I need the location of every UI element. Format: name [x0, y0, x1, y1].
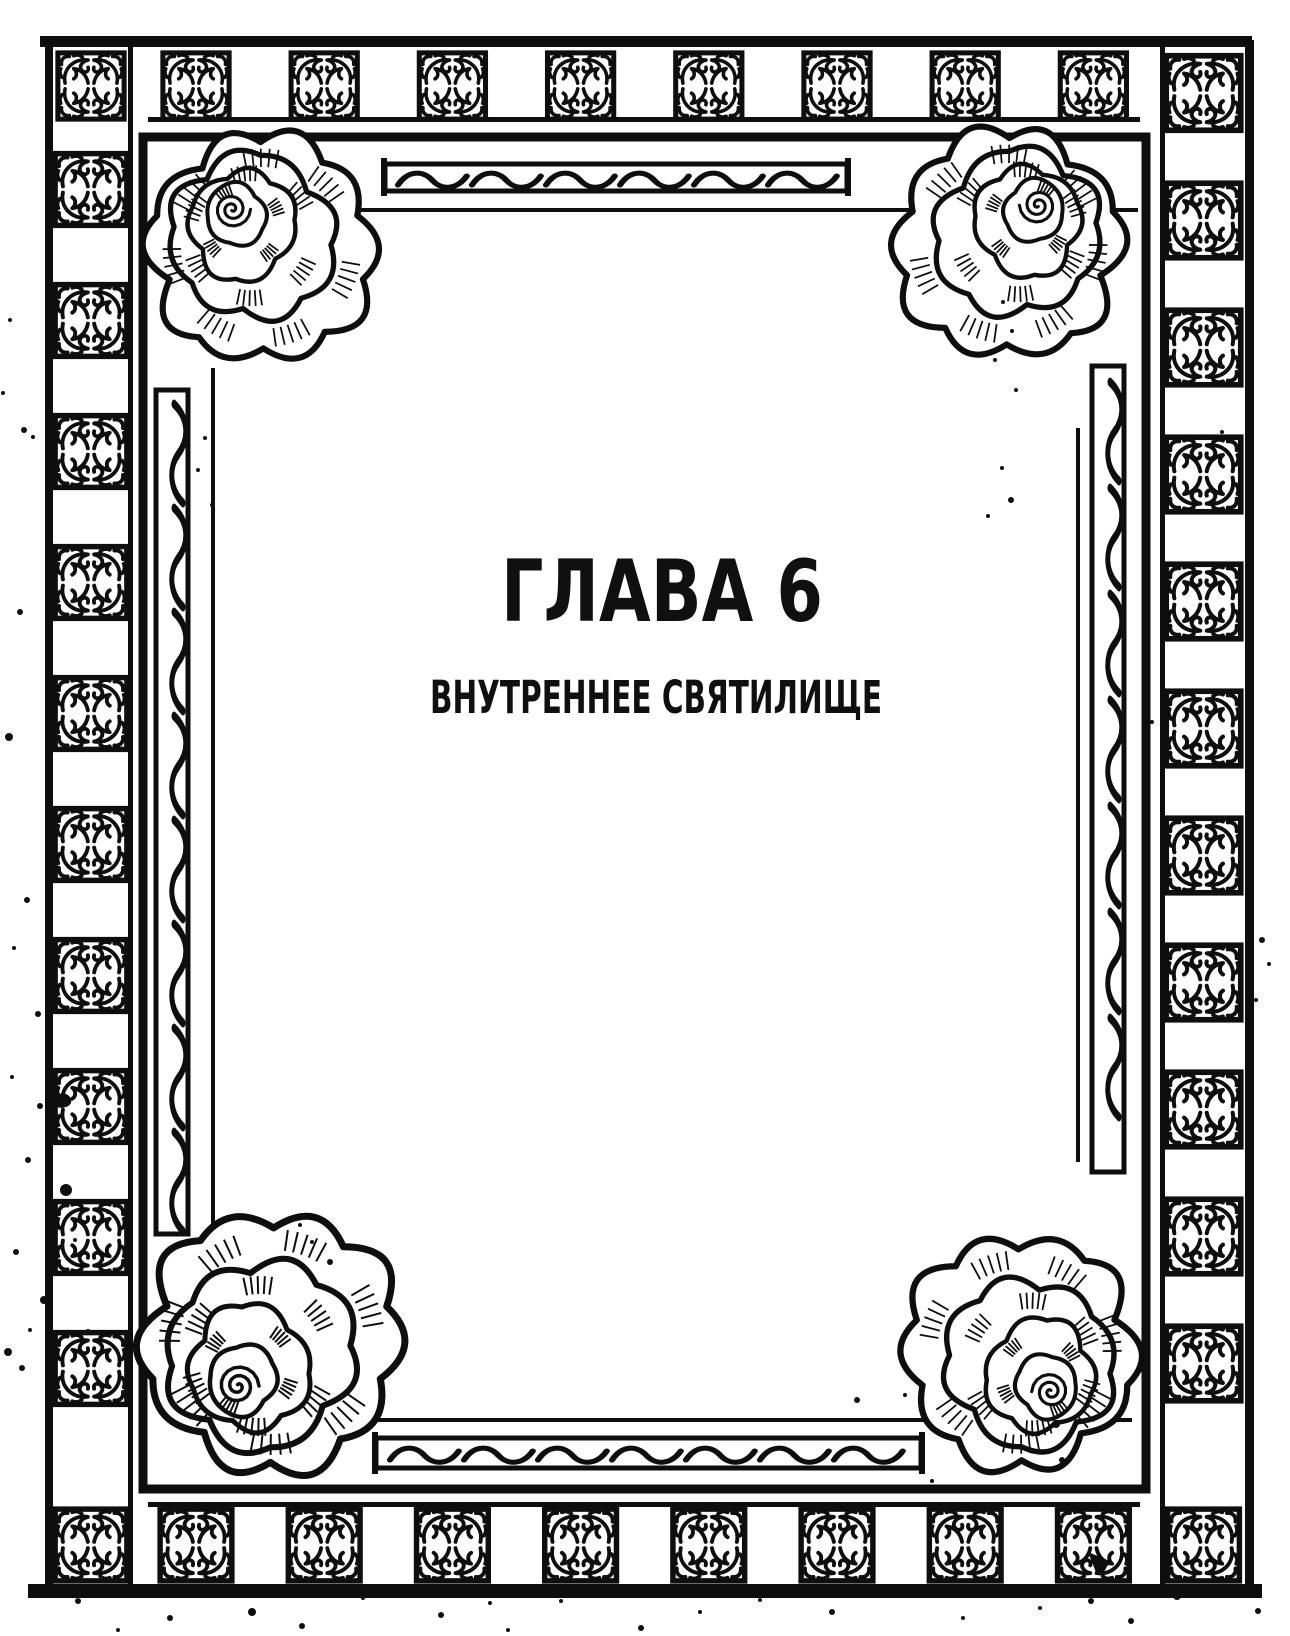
ornamental-tile [55, 678, 127, 750]
ink-splatter [986, 514, 990, 518]
bar-end-tick [372, 1432, 378, 1474]
scroll-squiggle [834, 1448, 903, 1462]
ink-splatter [35, 1011, 41, 1017]
ink-splatter [829, 1609, 835, 1615]
ornamental-border-art: ГЛАВА 6 ВНУТРЕННЕЕ СВЯТИЛИЩЕ [0, 0, 1290, 1636]
scroll-squiggle [172, 612, 186, 711]
frame-line [40, 36, 1252, 47]
ornamental-tile [1166, 945, 1241, 1020]
ink-splatter [1145, 688, 1149, 692]
ink-splatter [17, 609, 23, 615]
corner-rose [900, 1239, 1142, 1472]
frame-line [148, 1502, 1140, 1507]
ink-splatter [758, 1598, 762, 1602]
ornamental-tile [160, 1509, 232, 1581]
ornamental-tile [55, 1509, 127, 1581]
scroll-squiggle [768, 173, 837, 187]
ink-splatter [196, 468, 200, 472]
ornamental-tile [1166, 564, 1241, 639]
scroll-squiggle [172, 1028, 186, 1127]
ink-splatter [1220, 430, 1224, 434]
scroll-squiggle [172, 820, 186, 919]
ornamental-tile [932, 53, 998, 119]
ornamental-tile [929, 1509, 1001, 1581]
ink-splatter [1052, 1420, 1060, 1428]
ink-splatter [116, 1628, 120, 1632]
frame-line [1245, 40, 1254, 1592]
ink-splatter [1014, 388, 1018, 392]
ink-splatter [310, 1240, 314, 1244]
ornamental-tile [419, 53, 485, 119]
ink-splatter [12, 946, 16, 950]
ornamental-tile [1058, 1509, 1130, 1581]
ink-splatter [5, 733, 13, 741]
ink-splatter [1000, 466, 1004, 470]
ink-splatter [28, 1328, 32, 1332]
ink-splatter [85, 1329, 91, 1335]
ornamental-tile [291, 53, 357, 119]
ornamental-tile [55, 809, 127, 881]
ornamental-tile [55, 416, 127, 488]
ink-splatter [638, 1625, 644, 1631]
scroll-squiggle [1108, 488, 1122, 587]
scroll-squiggle [686, 1448, 755, 1462]
ink-splatter [1212, 498, 1216, 502]
ink-splatter [210, 503, 214, 507]
ornamental-tile [1168, 1509, 1240, 1581]
scroll-squiggle [1108, 912, 1122, 1011]
chapter-title: ГЛАВА 6 [501, 542, 823, 642]
ornamental-tile [163, 53, 229, 119]
ink-splatter [21, 427, 27, 433]
scroll-squiggle [172, 404, 186, 503]
ink-splatter [1001, 300, 1005, 304]
scroll-squiggle [172, 924, 186, 1023]
ink-splatter [299, 1623, 305, 1629]
ink-splatter [1, 391, 5, 395]
ink-splatter [438, 1612, 444, 1618]
ornamental-tile [1060, 53, 1126, 119]
scroll-squiggle [1108, 382, 1122, 481]
ink-splatter [248, 1608, 256, 1616]
scroll-squiggle [172, 508, 186, 607]
ink-splatter [24, 897, 30, 903]
ornamental-tile [288, 1509, 360, 1581]
ornamental-tile [417, 1509, 489, 1581]
scroll-squiggle [546, 173, 615, 187]
ink-splatter [1173, 1592, 1181, 1600]
ink-splatter [361, 1596, 365, 1600]
ink-splatter [75, 1598, 81, 1604]
ink-splatter [698, 1610, 702, 1614]
ornamental-tile [1166, 1326, 1241, 1401]
ink-splatter [559, 1599, 563, 1603]
scroll-squiggle [1108, 1018, 1122, 1117]
scroll-squiggle [472, 173, 541, 187]
ink-splatter [1008, 497, 1014, 503]
ornamental-tile [55, 285, 127, 357]
scroll-squiggle [464, 1448, 533, 1462]
ornamental-tile [1166, 183, 1241, 258]
ornamental-tile [55, 940, 127, 1012]
scroll-squiggle [1108, 594, 1122, 693]
ornamental-tile [676, 53, 742, 119]
ink-splatter [903, 1393, 907, 1397]
scroll-squiggle [620, 173, 689, 187]
ink-splatter [60, 1184, 72, 1196]
ornamental-tile [55, 154, 127, 226]
ornamental-tile [55, 1333, 127, 1405]
ornamental-tile [1166, 818, 1241, 893]
bar-end-tick [845, 158, 851, 196]
guide-line [1076, 428, 1080, 1162]
ornamental-tile [1166, 691, 1241, 766]
ornamental-tile [55, 547, 127, 619]
corner-rose [891, 127, 1127, 355]
ink-splatter [1267, 962, 1271, 966]
ink-splatter [19, 1365, 25, 1371]
ink-splatter [1150, 720, 1154, 724]
ink-splatter [1059, 1457, 1065, 1463]
ink-splatter [993, 358, 997, 362]
ornamental-tile [1166, 1199, 1241, 1274]
corner-roses [136, 127, 1142, 1476]
ornamental-tile [1166, 1072, 1241, 1147]
scroll-squiggle [694, 173, 763, 187]
ink-splatter [106, 1210, 110, 1214]
ink-splatter [488, 1601, 492, 1605]
ink-splatter [73, 1238, 77, 1242]
bar-end-tick [381, 158, 387, 196]
scroll-squiggle [760, 1448, 829, 1462]
ink-splatter [854, 1397, 860, 1403]
scroll-squiggle [538, 1448, 607, 1462]
ornamental-tile [801, 1509, 873, 1581]
ink-splatter [1128, 1618, 1134, 1624]
bar-end-tick [919, 1432, 925, 1474]
ornamental-tile [55, 1202, 127, 1274]
ink-splatter [167, 1615, 173, 1621]
ink-splatter [860, 1594, 864, 1598]
ink-splatter [1088, 1598, 1094, 1604]
scroll-squiggle [390, 1448, 459, 1462]
ink-splatter [1255, 1608, 1261, 1614]
scroll-squiggle [1108, 806, 1122, 905]
ink-splatter [298, 1223, 302, 1227]
ink-splatter [506, 1628, 510, 1632]
corner-rose [136, 1216, 405, 1475]
ink-splatter [1259, 937, 1265, 943]
ink-splatter [25, 1157, 31, 1163]
scroll-squiggle [172, 1132, 186, 1231]
ink-splatter [1010, 329, 1014, 333]
ink-splatter [961, 1616, 965, 1620]
ornamental-tile [1166, 56, 1241, 131]
ornamental-tile [804, 53, 870, 119]
scroll-squiggle [172, 716, 186, 815]
ink-splatter [1038, 1606, 1042, 1610]
scroll-squiggle [612, 1448, 681, 1462]
ink-splatter [930, 1479, 934, 1483]
ink-splatter [4, 1348, 12, 1356]
chapter-title-page: ГЛАВА 6 ВНУТРЕННЕЕ СВЯТИЛИЩЕ [0, 0, 1290, 1636]
ornamental-tile [545, 1509, 617, 1581]
corner-rose [143, 131, 379, 359]
ink-splatter [8, 318, 12, 322]
ink-splatter [31, 435, 35, 439]
chapter-subtitle: ВНУТРЕННЕЕ СВЯТИЛИЩЕ [430, 671, 882, 724]
ink-splatter [1254, 998, 1258, 1002]
frame-line [28, 1584, 1262, 1598]
ink-splatter [40, 1296, 48, 1304]
ink-splatter [10, 1075, 14, 1079]
ink-splatter [327, 1259, 333, 1265]
ornamental-tile [1166, 437, 1241, 512]
frame-line [45, 36, 53, 1592]
ink-splatter [37, 1103, 43, 1109]
ornamental-tile [58, 53, 124, 119]
scroll-squiggle [1108, 700, 1122, 799]
ornamental-tile [547, 53, 613, 119]
guide-line [211, 368, 215, 1234]
ink-splatter [203, 436, 207, 440]
ornamental-tile [1166, 310, 1241, 385]
scroll-squiggle [398, 173, 467, 187]
ink-splatter [1248, 1088, 1252, 1092]
ink-splatter [13, 1249, 19, 1255]
ornamental-tile [673, 1509, 745, 1581]
